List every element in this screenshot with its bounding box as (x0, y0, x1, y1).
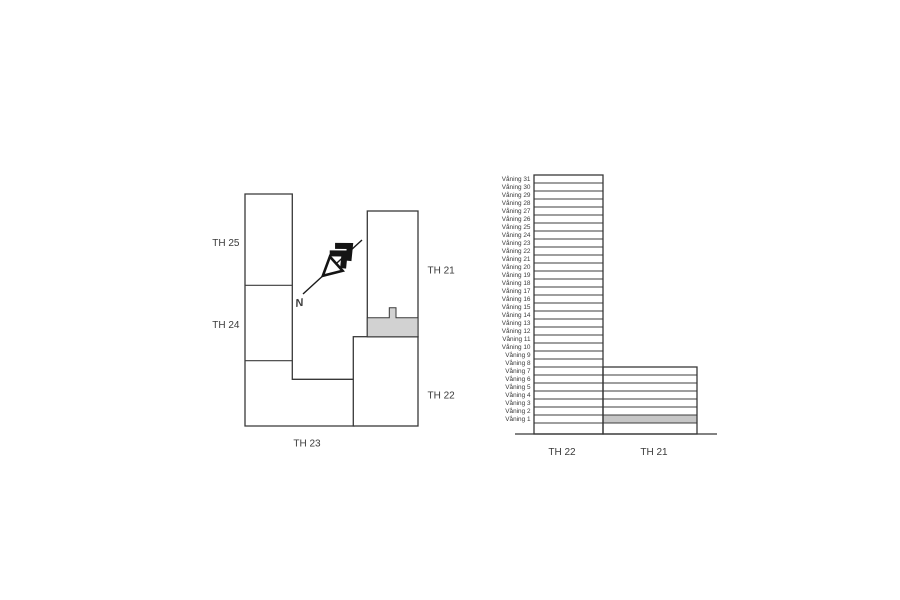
floor-label: Våning 23 (502, 239, 531, 247)
plan-building-th22 (353, 337, 418, 426)
floor-label: Våning 4 (505, 391, 531, 399)
floor-label: Våning 5 (505, 383, 531, 391)
floor-label: Våning 28 (502, 199, 531, 207)
north-label: N (294, 297, 305, 310)
floor-label: Våning 12 (502, 327, 531, 335)
architectural-diagram: TH 25 TH 24 TH 23 TH 21 TH 22 N Våning 3… (0, 0, 900, 600)
floor-label: Våning 27 (502, 207, 531, 215)
plan-label-th24: TH 24 (212, 320, 240, 331)
elevation-building-th21 (603, 367, 697, 434)
elevation-tower-th22 (534, 175, 603, 434)
elevation-highlighted-floor (603, 415, 697, 423)
elevation: Våning 31Våning 30Våning 29Våning 28Våni… (502, 175, 717, 458)
floor-label: Våning 31 (502, 175, 531, 183)
floor-label: Våning 1 (505, 415, 531, 423)
floor-label: Våning 11 (502, 335, 531, 343)
plan-building-west (245, 194, 354, 426)
plan-label-th21: TH 21 (428, 266, 456, 277)
floor-label: Våning 3 (505, 399, 531, 407)
north-zigzag-2 (335, 239, 357, 261)
floor-label: Våning 2 (505, 407, 531, 415)
floor-label: Våning 20 (502, 263, 531, 271)
plan-label-th22: TH 22 (428, 391, 456, 402)
plan-label-th25: TH 25 (212, 238, 240, 249)
elevation-floor-rows: Våning 31Våning 30Våning 29Våning 28Våni… (502, 175, 697, 423)
floor-label: Våning 29 (502, 191, 531, 199)
floor-label: Våning 17 (502, 287, 531, 295)
floor-label: Våning 13 (502, 319, 531, 327)
floor-label: Våning 15 (502, 303, 531, 311)
floor-label: Våning 25 (502, 223, 531, 231)
floor-label: Våning 26 (502, 215, 531, 223)
elevation-label-th22: TH 22 (548, 447, 576, 458)
site-plan: TH 25 TH 24 TH 23 TH 21 TH 22 N (212, 194, 455, 450)
floor-label: Våning 6 (505, 375, 531, 383)
floor-label: Våning 24 (502, 231, 531, 239)
floor-label: Våning 14 (502, 311, 531, 319)
floor-label: Våning 18 (502, 279, 531, 287)
north-arrow-glyph (314, 239, 359, 283)
floor-label: Våning 7 (505, 367, 531, 375)
floor-label: Våning 8 (505, 359, 531, 367)
north-arrow-icon: N (294, 239, 362, 310)
floor-label: Våning 21 (502, 255, 531, 263)
diagram-svg: TH 25 TH 24 TH 23 TH 21 TH 22 N Våning 3… (0, 0, 900, 600)
plan-label-th23: TH 23 (293, 439, 321, 450)
floor-label: Våning 22 (502, 247, 531, 255)
floor-label: Våning 19 (502, 271, 531, 279)
floor-label: Våning 10 (502, 343, 531, 351)
floor-label: Våning 30 (502, 183, 531, 191)
floor-label: Våning 9 (505, 351, 531, 359)
elevation-label-th21: TH 21 (640, 447, 668, 458)
floor-label: Våning 16 (502, 295, 531, 303)
